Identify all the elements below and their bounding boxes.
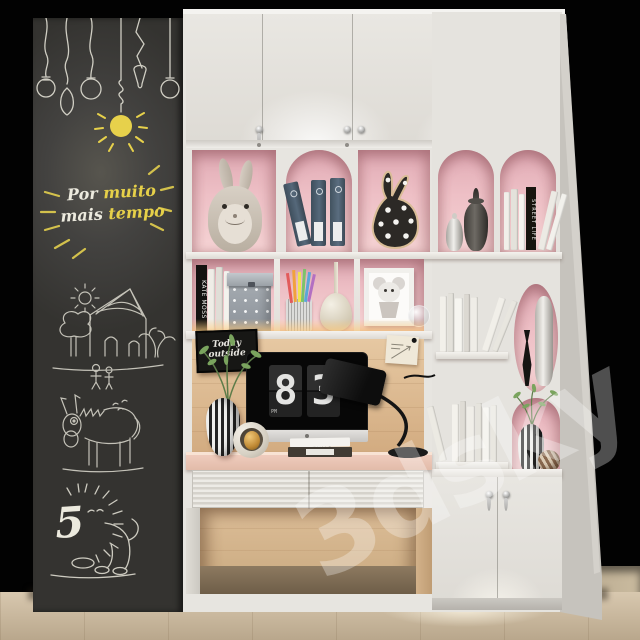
niche-jars [438,150,494,252]
decor-jar-silver [446,218,463,251]
decor-urn-dark [464,202,488,251]
binder-ring-hole [335,186,342,193]
polka-rabbit-decor [366,166,424,250]
niche-bunny [192,150,276,252]
mouse-cup [377,302,401,318]
desk-plant [188,334,268,406]
niche-polka-rabbit [358,150,430,252]
book-row: STREET LIFE [504,186,554,250]
binder [311,180,326,246]
flip-clock-card-hour: 8 PM [269,365,302,417]
binder-label [333,222,342,241]
jar-lid-knob [452,213,457,219]
urn-lid-tier [468,198,484,204]
mouse-eye [391,289,394,292]
door-knob [256,126,263,133]
chalk-bulbs-drawing [37,18,179,115]
hinge-cap [257,143,261,147]
chalk-glowing-bulb [95,113,147,151]
plush-bunny [198,158,272,252]
book-spine [519,194,525,250]
black-book-spine: STREET LIFE [526,187,536,250]
chalk-number-5: 5 [53,497,86,548]
book-spine [448,293,454,352]
book-spine [440,296,447,352]
shelf-board [186,252,562,259]
chalk-phrase-word: mais [60,205,103,226]
chalk-phrase-word: tempo [108,201,165,223]
bookcase-plinth [432,598,562,610]
desk-side-panel-left [186,508,200,594]
mouse-art-frame [364,268,414,326]
chalk-phrase-word: Por [67,184,99,205]
chalk-house-drawing [53,284,175,389]
door-seam [352,14,353,140]
mouse-head [378,282,400,302]
box-latch [248,282,255,287]
book-spine [455,298,463,352]
door-knob [344,126,351,133]
bunny-smile [225,214,245,225]
binder-ring-hole [316,188,323,195]
mouse-eye [384,289,387,292]
book-spine [511,189,518,250]
chalk-phrase-word: muito [103,181,157,203]
door-light-pool [226,34,406,140]
binder-label [295,221,308,242]
golden-egg-bowl [233,422,269,458]
bookcase-upper-books [440,290,506,352]
bunny-eye [244,204,249,209]
note-scribble [387,339,416,363]
hutch-open-shelf: KATE MOSS [192,259,424,331]
door-knob [358,126,365,133]
chalk-phrase: Por muito mais tempo [56,179,168,227]
book-spine [464,294,470,352]
binder [283,181,312,247]
bunny-eye [222,204,227,209]
book-spine [504,192,510,250]
clock-hour-digit: 8 [273,368,297,414]
golden-egg [244,431,260,450]
hinge-cap [345,143,349,147]
binder-label [314,222,323,241]
pencil [292,270,297,302]
chalk-donkey-drawing [61,395,143,472]
bookcase-side-panel [560,12,604,624]
niche-street-books: STREET LIFE [500,150,556,252]
binder-ring-hole [290,190,298,198]
sticky-note [385,335,419,365]
book-spine [471,297,478,352]
door-seam [262,14,263,140]
niche-binders [286,150,352,252]
binder [330,178,345,246]
shelf-board [436,352,508,359]
render-scene: Por muito mais tempo 5 [0,0,640,640]
chalkboard-panel: Por muito mais tempo 5 [33,18,183,612]
clock-meridiem: PM [271,409,277,415]
